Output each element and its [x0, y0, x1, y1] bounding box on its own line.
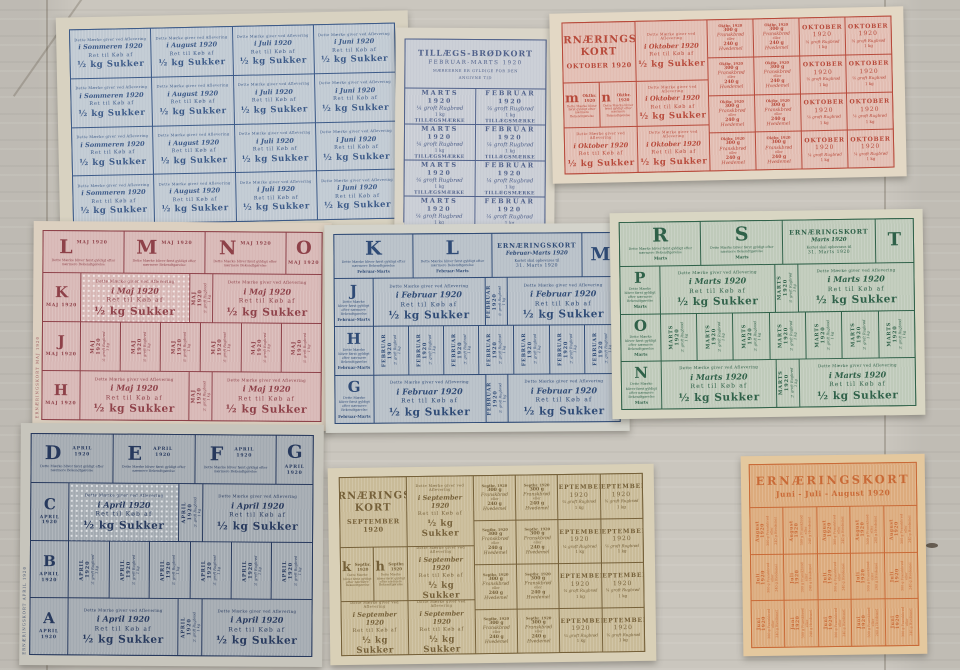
bread-desc: 1 kg	[135, 554, 139, 584]
coupon-redeem-text: Dette Mærke giver ved Aflevering	[342, 601, 406, 609]
coupon-month: i April 1920	[231, 500, 284, 510]
coupon-year: 1920	[427, 134, 452, 141]
letter-row: K	[365, 239, 382, 258]
letter-date: MAJ 1920	[240, 241, 271, 247]
vertical-text: FEBRUAR1920¼ groft Rugbrød1 kg	[486, 333, 506, 367]
bread-month: 1920	[247, 555, 253, 585]
coupon-desc: 240 g Hvedemel	[808, 562, 812, 592]
letter-cell: SDette Mærke bliver først gyldigt efter …	[701, 221, 782, 265]
vertical-text: MARTS1920¼ groft Rugbrød1 kg	[778, 368, 798, 399]
letter-glyph: T	[888, 232, 902, 250]
coupon-amount: ½ kg Sukker	[158, 57, 225, 68]
coupon-month: SEPTEMBER	[558, 483, 600, 491]
letter-note: Dette Mærke bliver først gyldigt efter n…	[622, 334, 659, 351]
coupon-desc: 240 g Hvedemel	[842, 608, 846, 638]
bread-coupon-vertical: FEBRUAR1920¼ groft Rugbrød1 kg	[486, 375, 508, 422]
letter-note: Dette Mærke bliver først gyldigt efter n…	[336, 348, 372, 365]
coupon-year: 1920	[815, 144, 834, 151]
sugar-coupon: Dette Mærke giver ved Afleveringi Juni 1…	[317, 170, 398, 219]
letter-date: Oktbr. 1920	[581, 92, 599, 102]
coupon-month: i August 1920	[169, 187, 220, 196]
vertical-text: APRIL1920¼ groft Rugbrød1 kg	[201, 555, 221, 585]
coupon-qty: 1 kg	[818, 44, 827, 49]
bread-coupon: SEPTEMBER1920¼ groft Rugbrød1 kg	[559, 563, 601, 607]
bread-desc: 1 kg	[186, 332, 190, 362]
coupon-entitle-text: Ret til Køb af	[579, 151, 624, 158]
coupon-qty: 1 kg	[865, 81, 874, 86]
sugar-coupon: Dette Mærke giver ved Afleveringi April …	[68, 598, 178, 655]
vertical-text: Juli1920300 g Franskbrødeller240 g Hvede…	[823, 561, 845, 591]
bread-coupon-vertical: MARTS1920¼ groft Rugbrød1 kg	[697, 313, 733, 360]
bread-coupon-vertical: FEBRUAR1920¼ groft Rugbrød1 kg	[409, 327, 444, 374]
card-title: TILLÆGS-BRØDKORT	[418, 48, 533, 59]
card-subtitle: Februar-Marts 1920	[506, 251, 568, 257]
card-row: CAPRIL 1920Dette Mærke giver ved Aflever…	[31, 483, 312, 541]
coupon-entitle-text: Ret til Køb af	[332, 47, 377, 54]
coupon-year: 1920	[813, 31, 832, 38]
coupon-month: SEPTEMBER	[559, 528, 601, 536]
coupon-entitle-text: Ret til Køb af	[252, 97, 297, 104]
card-subtitle: Marts 1920	[811, 237, 847, 243]
coupon-stamp: TILLÆGSMÆRKE	[485, 191, 535, 196]
coupon-desc: 240 g Hvedemel	[908, 561, 912, 591]
bread-desc: 1 kg	[793, 320, 797, 350]
coupon-year: 1920	[498, 98, 523, 105]
bread-coupon: SEPTEMBER1920¼ groft Rugbrød1 kg	[558, 474, 600, 518]
bread-coupon-vertical: FEBRUAR1920¼ groft Rugbrød1 kg	[479, 326, 514, 373]
coupon-desc: ¼ groft Rugbrød	[416, 141, 463, 147]
coupon-month: FEBRUAR	[485, 89, 535, 97]
bread-coupon: OKTOBER1920¼ groft Rugbrød1 kg	[848, 130, 894, 168]
card-sheet: TILLÆGS-BRØDKORTFEBRUAR-MARTS 1920MÆRKER…	[403, 39, 546, 224]
coupon-redeem-text: Dette Mærke giver ved Aflevering	[237, 33, 309, 39]
card-row: ODette Mærke bliver først gyldigt efter …	[621, 310, 915, 361]
coupon-amount: ½ kg Sukker	[638, 58, 705, 69]
coupon-year: 1920	[860, 105, 879, 112]
coupon-qty: 1 kg	[866, 119, 875, 124]
coupon-entitle-text: Ret til Køb af	[239, 297, 296, 304]
sugar-coupon: Dette Mærke giver ved Afleveringi Oktobe…	[636, 80, 709, 126]
letter-cell: nOktbr. 1920Dette Mærke bliver først gyl…	[600, 81, 636, 126]
coupon-redeem-text: Dette Mærke giver ved Aflevering	[524, 378, 603, 384]
coupon-year: 1920	[612, 491, 631, 498]
letter-row: R	[652, 227, 668, 246]
coupon-month: MARTS	[421, 196, 458, 204]
letter-date: APRIL 1920	[32, 572, 66, 584]
vertical-text: FEBRUAR1920¼ groft Rugbrød1 kg	[416, 334, 436, 368]
ration-coupon-vertical: Juli1920300 g Franskbrødeller240 g Hvede…	[751, 555, 784, 601]
ration-coupon-vertical: Juni1920300 g Franskbrødeller240 g Hvede…	[785, 601, 818, 647]
ration-coupon-vertical: August1920300 g Franskbrødeller240 g Hve…	[851, 507, 884, 553]
coupon-desc: 240 g Hvedemel	[874, 561, 878, 591]
letter-cell: DAPRIL 1920Dette Mærke bliver først gyld…	[31, 434, 112, 483]
letter-glyph: B	[43, 554, 56, 569]
vertical-text: Juni1920300 g Franskbrødeller240 g Hvede…	[857, 608, 879, 638]
flour-coupon: Oktbr. 1920300 gFranskbrødeller240 gHved…	[710, 133, 756, 171]
coupon-desc: Hvedemel	[766, 122, 790, 128]
coupon-qty: 1 kg	[619, 637, 628, 642]
coupon-month: i Sommeren 1920	[78, 42, 142, 51]
coupon-entitle-text: Ret til Køb af	[89, 100, 134, 107]
ration-coupon-vertical: Juni1920300 g Franskbrødeller240 g Hvede…	[852, 600, 885, 646]
coupon-amount: ½ kg Sukker	[94, 305, 176, 318]
vertical-text: August1920300 g Franskbrødeller240 g Hve…	[822, 515, 844, 545]
vertical-text: APRIL1920¼ groft Rugbrød1 kg	[79, 554, 99, 584]
bread-coupon: OKTOBER1920¼ groft Rugbrød1 kg	[845, 17, 891, 55]
coupon-amount: ½ kg Sukker	[77, 59, 144, 70]
coupon-desc: ¼ groft Rugbrød	[487, 106, 534, 112]
coupon-month: SEPTEMBER	[602, 572, 644, 580]
bread-supplement-coupon: FEBRUAR1920¼ groft Rugbrød1 kgTILLÆGSMÆR…	[475, 125, 545, 160]
card-right-section: Septbr. 1920300 gFranskbrødeller240 gHve…	[474, 474, 645, 653]
flour-coupon: Septbr. 1920300 gFranskbrødeller240 gHve…	[517, 564, 559, 608]
flour-coupon: Oktbr. 1920300 gFranskbrødeller240 gHved…	[754, 19, 800, 57]
bread-coupon-vertical: APRIL1920¼ groft Rugbrød1 kg	[231, 542, 271, 598]
coupon-qty: 1 kg	[434, 185, 444, 190]
coupon-amount: ½ kg Sukker	[409, 580, 473, 600]
coupon-month: August	[789, 516, 794, 546]
card-ernaeringskort-maj-1920: LMAJ 1920Dette Mærke bliver først gyldig…	[32, 221, 331, 431]
coupon-entitle-text: Ret til Køb af	[335, 193, 380, 200]
coupon-desc: Hvedemel	[526, 550, 550, 555]
flour-coupon: Oktbr. 1920300 gFranskbrødeller240 gHved…	[709, 57, 755, 95]
bread-desc: 1 kg	[502, 333, 506, 367]
vertical-text: August1920300 g Franskbrødeller240 g Hve…	[789, 515, 811, 545]
coupon-qty: 1 kg	[821, 157, 830, 162]
bread-coupon-vertical: APRIL1920¼ groft Rugbrød1 kg	[150, 541, 190, 597]
coupon-desc: ¼ groft Rugbrød	[605, 542, 639, 547]
card-row: JDette Mærke bliver først gyldigt efter …	[335, 277, 619, 326]
letter-cell: MMAJ 1920Dette Mærke bliver først gyldig…	[124, 232, 204, 274]
card-row: KMAJ 1920Dette Mærke giver ved Afleverin…	[43, 273, 321, 323]
vertical-text: August1920300 g Franskbrødeller240 g Hve…	[856, 514, 878, 544]
flour-coupon: Oktbr. 1920300 gFranskbrødeller240 gHved…	[755, 94, 801, 132]
coupon-month: i Maj 1920	[111, 285, 159, 295]
bread-desc: 1 kg	[432, 334, 436, 368]
coupon-month: i Marts 1920	[829, 369, 886, 380]
coupon-month: i Marts 1920	[827, 274, 884, 285]
coupon-entitle-text: Ret til Køb af	[828, 285, 885, 293]
bread-coupon-vertical: MAJ1920¼ groft Rugbrød1 kg	[161, 323, 201, 371]
bread-coupon: OKTOBER1920¼ groft Rugbrød1 kg	[801, 93, 847, 131]
letter-note: Dette Mærke bliver først gyldigt efter n…	[565, 104, 599, 118]
card-header: ERNÆRINGSKORTJuni - Juli - August 1920	[750, 463, 917, 508]
letter-cell: FAPRIL 1920Dette Mærke bliver først gyld…	[195, 435, 276, 484]
coupon-entitle-text: Ret til Køb af	[401, 397, 458, 404]
bread-desc: 1 kg	[573, 333, 577, 367]
letter-glyph: G	[348, 380, 361, 395]
coupon-amount: ½ kg Sukker	[80, 205, 147, 216]
coupon-redeem-text: Dette Mærke giver ved Aflevering	[159, 181, 231, 187]
letter-row: EAPRIL 1920	[127, 445, 180, 464]
coupon-month: i Maj 1920	[243, 286, 291, 296]
sugar-coupon: Dette Mærke giver ved Afleveringi August…	[151, 27, 232, 76]
coupon-year: 1920	[569, 491, 588, 498]
bread-desc: 1 kg	[106, 331, 110, 361]
coupon-year: 1920	[613, 580, 632, 587]
coupon-year: 1920	[813, 69, 832, 76]
coupon-qty: 1 kg	[575, 549, 584, 554]
coupon-month: i Oktober 1920	[573, 141, 628, 150]
letter-date: MAJ 1920	[161, 240, 192, 246]
coupon-month: i August 1920	[167, 89, 218, 98]
coupon-qty: 1 kg	[435, 149, 445, 154]
letter-glyph: O	[634, 318, 647, 333]
coupon-desc: 240 g Hvedemel	[775, 609, 779, 639]
bread-coupon-vertical: MAJ1920¼ groft Rugbrød1 kg	[281, 324, 321, 372]
coupon-entitle-text: Ret til Køb af	[170, 50, 215, 57]
coupon-redeem-text: Dette Mærke giver ved Aflevering	[74, 36, 146, 42]
coupon-desc: Hvedemel	[485, 640, 509, 645]
coupon-entitle-text: Ret til Køb af	[334, 144, 379, 151]
bread-coupon: OKTOBER1920¼ groft Rugbrød1 kg	[847, 92, 893, 130]
coupon-redeem-text: Dette Mærke giver ved Aflevering	[75, 85, 147, 91]
bread-desc: 1 kg	[467, 333, 471, 367]
coupon-month: OKTOBER	[802, 23, 843, 31]
bread-month: 1920	[125, 554, 131, 584]
wood-table-scene: Dette Mærke giver ved Afleveringi Sommer…	[0, 0, 960, 670]
coupon-month: FEBRUAR	[485, 161, 535, 169]
coupon-desc: 240 g Hvedemel	[840, 515, 844, 545]
coupon-month: i September 1920	[409, 555, 473, 572]
coupon-month: i Sommeren 1920	[79, 91, 143, 100]
sugar-coupon: Dette Mærke giver ved Afleveringi Oktobe…	[565, 127, 638, 173]
sugar-coupon: Dette Mærke giver ved Afleveringi Sommer…	[71, 77, 152, 126]
coupon-redeem-text: Dette Mærke giver ved Aflevering	[566, 131, 636, 140]
card-row: RDette Mærke bliver først gyldigt efter …	[620, 219, 914, 266]
bread-month: MAJ	[130, 332, 136, 362]
sugar-coupon: Dette Mærke giver ved Afleveringi April …	[69, 484, 179, 541]
vertical-text: MAJ1920¼ groft Rugbrød1 kg	[170, 332, 190, 362]
coupon-entitle-text: Ret til Køb af	[90, 149, 135, 156]
bread-supplement-coupon: FEBRUAR1920¼ groft Rugbrød1 kgTILLÆGSMÆR…	[475, 161, 545, 196]
card-tillaegs-broedkort-februar-marts-1920: TILLÆGS-BRØDKORTFEBRUAR-MARTS 1920MÆRKER…	[394, 27, 555, 234]
letter-note: Dette Mærke bliver først gyldigt efter n…	[703, 245, 782, 254]
flour-coupon: Septbr. 1920300 gFranskbrødeller240 gHve…	[517, 520, 559, 564]
letter-note: Dette Mærke bliver først gyldigt efter n…	[336, 396, 372, 413]
letter-glyph: J	[350, 283, 357, 298]
coupon-desc: ¼ groft Rugbrød	[563, 588, 597, 593]
coupon-year: 1920	[571, 580, 590, 587]
bread-coupon-vertical: MARTS1920¼ groft Rugbrød1 kg	[661, 314, 697, 361]
bread-month: 1920	[136, 332, 142, 362]
card-keep-until-date: 31. Marts 1920	[808, 250, 850, 256]
letter-glyph: N	[634, 366, 648, 381]
letter-note: Dette Mærke bliver først gyldigt efter n…	[622, 286, 659, 303]
coupon-desc: Hvedemel	[720, 85, 744, 91]
sugar-coupon: Dette Mærke giver ved Afleveringi Oktobe…	[637, 126, 710, 172]
coupon-qty: 1 kg	[820, 120, 829, 125]
coupon-amount: ½ kg Sukker	[242, 153, 309, 164]
letter-date: APRIL 1920	[278, 465, 312, 477]
coupon-entitle-text: Ret til Køb af	[95, 625, 152, 632]
coupon-amount: ½ kg Sukker	[241, 104, 308, 115]
coupon-desc: 240 g Hvedemel	[875, 608, 879, 638]
card-keep-until-date: 31. Marts 1920	[516, 264, 558, 269]
coupon-redeem-text: Dette Mærke giver ved Aflevering	[228, 279, 307, 285]
bread-desc: 1 kg	[207, 283, 211, 313]
coupon-redeem-text: Dette Mærke giver ved Aflevering	[637, 84, 707, 93]
letter-cell: LDette Mærke bliver først gyldigt efter …	[413, 234, 491, 278]
coupon-month: SEPTEMBER	[602, 616, 644, 624]
letter-cell: LMAJ 1920Dette Mærke bliver først gyldig…	[43, 231, 123, 273]
coupon-month: OKTOBER	[804, 136, 845, 144]
coupon-qty: 1 kg	[576, 593, 585, 598]
coupon-amount: ½ kg Sukker	[523, 405, 605, 418]
coupon-year: 1920	[427, 170, 452, 177]
coupon-desc: 240 g Hvedemel	[808, 609, 812, 639]
bread-coupon: SEPTEMBER1920¼ groft Rugbrød1 kg	[600, 474, 642, 518]
sugar-coupon: Dette Mærke giver ved Afleveringi Maj 19…	[81, 274, 189, 323]
coupon-month: i Sommeren 1920	[81, 188, 145, 197]
coupon-entitle-text: Ret til Køb af	[91, 198, 136, 205]
vertical-text: Juli1920300 g Franskbrødeller240 g Hvede…	[856, 561, 878, 591]
letter-date: APRIL 1920	[146, 447, 180, 459]
card-title: ERNÆRINGSKORT	[789, 227, 868, 236]
coupon-month: i Marts 1920	[689, 276, 746, 287]
coupon-desc: Hvedemel	[525, 506, 549, 511]
letter-cell: OMAJ 1920	[286, 233, 322, 275]
coupon-stamp: TILLÆGSMÆRKE	[415, 118, 465, 123]
coupon-qty: 1 kg	[866, 156, 875, 161]
bread-coupon-vertical: APRIL1920¼ groft Rugbrød1 kg	[179, 484, 202, 540]
coupon-redeem-text: Dette Mærke giver ved Aflevering	[239, 131, 311, 137]
bread-coupon-vertical: MAJ1920¼ groft Rugbrød1 kg	[190, 274, 213, 322]
letter-date: MAJ 1920	[77, 240, 108, 246]
coupon-entitle-text: Ret til Køb af	[228, 626, 285, 633]
coupon-desc: Hvedemel	[766, 84, 790, 90]
coupon-redeem-text: Dette Mærke giver ved Aflevering	[678, 269, 757, 275]
vertical-text: August1920300 g Franskbrødeller240 g Hve…	[756, 516, 778, 546]
sugar-coupon: Dette Mærke giver ved Afleveringi August…	[153, 125, 234, 174]
coupon-amount: ½ kg Sukker	[817, 389, 899, 402]
bread-month: 1920	[176, 332, 182, 362]
sugar-coupon: Dette Mærke giver ved Afleveringi Marts …	[661, 360, 776, 408]
coupon-amount: ½ kg Sukker	[324, 200, 391, 211]
coupon-qty: 1 kg	[435, 113, 445, 118]
vertical-text: Juni1920300 g Franskbrødeller240 g Hvede…	[790, 609, 812, 639]
card-title: ERNÆRINGS-	[562, 34, 635, 48]
coupon-month: i Oktober 1920	[645, 94, 700, 103]
bread-coupon: OKTOBER1920¼ groft Rugbrød1 kg	[800, 18, 846, 56]
coupon-redeem-text: Dette Mærke giver ved Aflevering	[320, 129, 392, 135]
letter-period: Februar-Marts	[357, 268, 390, 273]
vertical-text: MAJ1920¼ groft Rugbrød1 kg	[191, 283, 211, 313]
vertical-text: MARTS1920¼ groft Rugbrød1 kg	[850, 319, 870, 350]
letter-note: Dette Mærke bliver først gyldigt efter n…	[336, 259, 412, 268]
bread-desc: 1 kg	[538, 333, 542, 367]
letter-row: DAPRIL 1920	[45, 444, 100, 463]
card-series-strip: ERNÆRINGSKORT MAJ 1920	[34, 336, 40, 419]
coupon-redeem-text: Dette Mærke giver ved Aflevering	[218, 494, 297, 500]
bread-coupon-vertical: FEBRUAR1920¼ groft Rugbrød1 kg	[373, 327, 408, 374]
coupon-redeem-text: Dette Mærke giver ved Aflevering	[85, 493, 164, 499]
letter-date: APRIL 1920	[33, 515, 67, 527]
sugar-coupon: Dette Mærke giver ved Afleveringi Juni 1…	[314, 24, 395, 73]
bread-coupon: OKTOBER1920¼ groft Rugbrød1 kg	[846, 54, 892, 92]
bread-coupon-vertical: MARTS1920¼ groft Rugbrød1 kg	[733, 312, 769, 359]
letter-glyph: A	[43, 611, 55, 626]
sugar-coupon: Dette Mærke giver ved Afleveringi Septem…	[407, 476, 474, 546]
bread-supplement-coupon: MARTS1920¼ groft Rugbrød1 kgTILLÆGSMÆRKE	[405, 160, 475, 195]
letter-glyph: P	[634, 271, 645, 286]
coupon-entitle-text: Ret til Køb af	[651, 149, 696, 156]
sugar-coupon: Dette Mærke giver ved Afleveringi Maj 19…	[212, 372, 320, 421]
coupon-desc: Hvedemel	[721, 123, 745, 129]
coupon-month: i August 1920	[168, 138, 219, 147]
coupon-month: i Februar 1920	[530, 288, 596, 298]
letter-glyph: M	[136, 238, 157, 257]
coupon-redeem-text: Dette Mærke giver ved Aflevering	[524, 282, 603, 288]
letter-row: L	[446, 239, 459, 258]
bread-coupon: SEPTEMBER1920¼ groft Rugbrød1 kg	[560, 608, 602, 652]
bread-desc: 1 kg	[793, 273, 797, 303]
vertical-text: MAJ1920¼ groft Rugbrød1 kg	[190, 381, 210, 411]
coupon-entitle-text: Ret til Køb af	[251, 48, 296, 55]
coupon-redeem-text: Dette Mærke giver ved Aflevering	[321, 178, 393, 184]
card-left-section: ERNÆRINGS-KORTOKTOBER 1920Dette Mærke gi…	[562, 20, 709, 173]
coupon-month: i Juni 1920	[337, 183, 377, 192]
letter-cell: kSeptbr. 1920Dette Mærke bliver først gy…	[341, 548, 374, 601]
vertical-text: FEBRUAR1920¼ groft Rugbrød1 kg	[557, 333, 577, 367]
sugar-coupon: Dette Mærke giver ved Afleveringi August…	[152, 76, 233, 125]
vertical-text: APRIL1920¼ groft Rugbrød1 kg	[241, 555, 261, 585]
flour-coupon: Septbr. 1920300 gFranskbrødeller240 gHve…	[518, 609, 560, 653]
vertical-text: MAJ1920¼ groft Rugbrød1 kg	[211, 332, 231, 362]
coupon-redeem-text: Dette Mærke giver ved Aflevering	[817, 267, 896, 273]
coupon-amount: ½ kg Sukker	[677, 296, 759, 309]
vertical-text: Juni1920300 g Franskbrødeller240 g Hvede…	[891, 607, 913, 637]
coupon-redeem-text: Dette Mærke giver ved Aflevering	[636, 31, 706, 40]
coupon-desc: 240 g Hvedemel	[807, 515, 811, 545]
bread-month: 1920	[563, 333, 569, 367]
coupon-amount: ½ kg Sukker	[160, 155, 227, 166]
ration-coupon-vertical: Juli1920300 g Franskbrødeller240 g Hvede…	[851, 553, 884, 599]
ration-coupon-vertical: Juni1920300 g Franskbrødeller240 g Hvede…	[752, 601, 785, 647]
coupon-amount: ½ kg Sukker	[159, 106, 226, 117]
bread-month: MAJ	[170, 332, 176, 362]
bread-coupon-vertical: MARTS1920¼ groft Rugbrød1 kg	[806, 311, 842, 358]
coupon-redeem-text: Dette Mærke giver ved Aflevering	[389, 283, 468, 289]
coupon-entitle-text: Ret til Køb af	[353, 628, 398, 635]
vertical-text: MARTS1920¼ groft Rugbrød1 kg	[814, 320, 834, 351]
bread-desc: 1 kg	[757, 321, 761, 351]
coupon-year: 1920	[614, 624, 633, 631]
letter-glyph: H	[54, 383, 68, 398]
coupon-desc: Hvedemel	[483, 507, 507, 512]
bread-coupon-vertical: APRIL1920¼ groft Rugbrød1 kg	[191, 542, 231, 598]
coupon-entitle-text: Ret til Køb af	[418, 511, 463, 518]
card-ernaeringskort-marts-1920: RDette Mærke bliver først gyldigt efter …	[610, 209, 926, 419]
coupon-year: 1920	[612, 535, 631, 542]
coupon-qty: 1 kg	[577, 638, 586, 643]
coupon-redeem-text: Dette Mærke giver ved Aflevering	[240, 179, 312, 185]
coupon-entitle-text: Ret til Køb af	[650, 103, 695, 110]
letter-row: LMAJ 1920	[59, 238, 108, 257]
coupon-entitle-text: Ret til Køb af	[88, 52, 133, 59]
coupon-desc: ¼ groft Rugbrød	[563, 543, 597, 548]
coupon-desc: ¼ groft Rugbrød	[416, 177, 463, 183]
card-sheet: LMAJ 1920Dette Mærke bliver først gyldig…	[41, 230, 322, 422]
sugar-coupon: Dette Mærke giver ved Afleveringi Oktobe…	[635, 20, 708, 80]
card-ernaeringskort-april-1920: DAPRIL 1920Dette Mærke bliver først gyld…	[19, 423, 324, 667]
coupon-redeem-text: Dette Mærke giver ved Aflevering	[319, 80, 391, 86]
coupon-entitle-text: Ret til Køb af	[829, 381, 886, 389]
sugar-coupon: Dette Mærke giver ved Afleveringi Marts …	[799, 263, 914, 311]
letter-period: Februar-Marts	[338, 413, 371, 418]
sugar-coupon: Dette Mærke giver ved Afleveringi Februa…	[373, 278, 484, 326]
vertical-text: MAJ1920¼ groft Rugbrød1 kg	[251, 332, 271, 362]
